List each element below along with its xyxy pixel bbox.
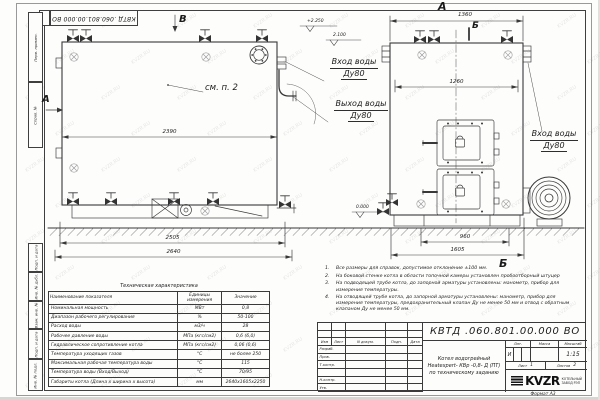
drawing-number: КВТД .060.801.00.000 ВО	[423, 323, 587, 341]
tech-table-cell: 2640х1605х2250	[222, 378, 270, 387]
tech-table-cell: Температура уходящих газов	[49, 350, 178, 359]
frame-column-label: Подп. и дата	[33, 331, 38, 357]
outlet-label-line2: Ду80	[348, 111, 373, 123]
tech-table-cell: 28	[222, 322, 270, 331]
logo-sub-line2: ЗАВОД РЭП	[562, 381, 582, 385]
outlet-label-side: Выход воды Ду80	[326, 99, 396, 122]
tech-table-cell: 115	[222, 359, 270, 368]
stamp-grid-cell-empty	[408, 346, 423, 354]
lit-cell-empty	[514, 348, 522, 361]
tech-table-header: Единицы измерения	[178, 291, 222, 304]
note-number: 2.	[325, 274, 336, 280]
stamp-grid-cell-empty	[346, 377, 386, 385]
stamp-grid-cell-empty	[346, 331, 386, 339]
tech-table: Наименование показателя Единицы измерени…	[48, 291, 270, 388]
tech-table-cell: МВт	[178, 304, 222, 313]
logo-text: KVZR	[525, 374, 560, 388]
frame-column-box: Инв. № дубл.	[28, 272, 43, 301]
stamp-grid-cell: Изм	[318, 338, 332, 346]
tech-table-row: Температура уходящих газов°Сне более 250	[49, 350, 270, 359]
tech-table-cell: МПа (кгс/см2)	[178, 332, 222, 341]
corner-stamp: КВТД .060.801.00.000 ВО	[50, 10, 138, 26]
tech-table-cell: Температура воды (Вход/Выход)	[49, 368, 178, 377]
frame-column-label: Справ. №	[33, 106, 38, 124]
frame-column-label: Инв. № дубл.	[33, 274, 38, 300]
tech-table-title: Техническая характеристика	[48, 283, 270, 289]
tech-table-cell: Максимальная рабочая температура воды	[49, 359, 178, 368]
tech-table-cell: Диапазон рабочего регулирования	[49, 313, 178, 322]
stamp-grid-cell-empty	[346, 346, 386, 354]
stamp-grid-cell-empty	[386, 369, 408, 377]
stamp-grid-cell-empty	[346, 369, 386, 377]
stamp-grid-cell-empty	[408, 377, 423, 385]
frame-column-box: Справ. №	[28, 82, 43, 148]
mass-value	[531, 348, 559, 361]
stamp-grid-cell-empty	[386, 346, 408, 354]
tech-table-cell: Рабочее давление воды	[49, 332, 178, 341]
stamp-grid-cell-empty	[346, 384, 386, 392]
product-line3: по техническому заданию	[429, 370, 499, 377]
outlet-label-line1: Выход воды	[334, 99, 389, 111]
stamp-grid-cell-empty	[386, 361, 408, 369]
inlet-label-line2: Ду80	[341, 69, 366, 81]
stamp-sheet-row: Лист 1 Листов 2	[506, 362, 587, 370]
stamp-grid-cell-empty	[408, 361, 423, 369]
stamp-grid-cell: N докум.	[346, 338, 386, 346]
stamp-grid-cell-empty	[386, 331, 408, 339]
tech-table-cell: МПа (кгс/см2)	[178, 341, 222, 350]
scale-value: 1:15	[559, 348, 587, 361]
sheets-label: Листов	[557, 364, 570, 368]
stamp-grid-cell-empty	[408, 384, 423, 392]
stamp-grid-cell-empty	[408, 354, 423, 362]
stamp-grid-cell: Дата	[408, 338, 423, 346]
dim-2640: 2640	[55, 249, 292, 255]
inlet-label-side: Вход воды Ду80	[322, 57, 386, 80]
tech-table-row: Диапазон рабочего регулирования%50-100	[49, 313, 270, 322]
frame-column-box: Подп. и дата	[28, 243, 43, 272]
lit-value: И	[506, 348, 514, 361]
product-title: Котел водогрейный Heatexpert- КВр -0,8- …	[423, 341, 506, 392]
note-text: Все размеры для справок, допустимое откл…	[336, 266, 487, 272]
tech-table-cell: °С	[178, 350, 222, 359]
tech-table-cell: °С	[178, 359, 222, 368]
stamp-grid-cell: Разраб.	[318, 346, 346, 354]
stamp-lit-header-row: Лит. Масса Масштаб	[506, 341, 587, 348]
stamp-grid-cell-empty	[318, 369, 346, 377]
sheet-value: 1	[530, 363, 533, 368]
tech-table-row: Максимальная рабочая температура воды°С1…	[49, 359, 270, 368]
tech-table-cell: 70/95	[222, 368, 270, 377]
notes-list: 1.Все размеры для справок, допустимое от…	[325, 266, 583, 315]
stamp-right-section: Лит. Масса Масштаб И 1:15 Лист 1	[506, 341, 587, 392]
callout-see-note-2: см. п. 2	[205, 83, 238, 93]
inlet-label-line1: Вход воды	[330, 57, 379, 69]
tech-table-cell: 0,8	[222, 304, 270, 313]
tech-table-header: Значение	[222, 291, 270, 304]
side-view	[46, 15, 316, 261]
tech-table-cell: не более 250	[222, 350, 270, 359]
stamp-grid-cell-empty	[318, 323, 332, 331]
stamp-grid-cell-empty	[386, 384, 408, 392]
stamp-grid-cell-empty	[386, 354, 408, 362]
view-arrow-label-v: В	[179, 14, 187, 25]
stamp-grid-cell-empty	[332, 331, 346, 339]
stamp-grid-cell-empty	[408, 323, 423, 331]
note-item: 2.На боковой стенке котла в области топо…	[325, 274, 583, 280]
frame-column-box: Взам. инв. №	[28, 301, 43, 329]
note-text: На отводящей трубе котла, до запорной ар…	[336, 295, 583, 313]
stamp-grid-cell: Подп.	[386, 338, 408, 346]
stamp-left-grid: ИзмЛистN докум.Подп.ДатаРазраб.Пров.Т.ко…	[318, 323, 423, 392]
frame-column-label: Взам. инв. №	[33, 302, 38, 328]
note-number: 4.	[325, 295, 336, 313]
note-number: 1.	[325, 266, 336, 272]
inlet-front-line2: Ду80	[541, 141, 566, 153]
frame-column-label: Перв. примен.	[33, 33, 38, 62]
elevation-zero: 0.000	[356, 205, 369, 210]
note-item: 4.На отводящей трубе котла, до запорной …	[325, 295, 583, 313]
inlet-front-line1: Вход воды	[530, 129, 579, 141]
stamp-grid-cell: Пров.	[318, 354, 346, 362]
tech-table-cell: Габариты котла (Длина х ширина х высота)	[49, 378, 178, 387]
stamp-grid-cell-empty	[386, 377, 408, 385]
mass-label: Масса	[531, 341, 559, 347]
tech-table-row: Гидравлическое сопротивление котлаМПа (к…	[49, 341, 270, 350]
stamp-grid-cell-empty	[332, 323, 346, 331]
stamp-grid-cell-empty	[408, 369, 423, 377]
tech-table-cell: Гидравлическое сопротивление котла	[49, 341, 178, 350]
dim-1605: 1605	[391, 247, 524, 253]
section-label-top: Б	[472, 21, 479, 31]
lit-cell-empty	[522, 348, 530, 361]
format-label: Формат А3	[500, 392, 586, 397]
stamp-grid-cell: Лист	[332, 338, 346, 346]
logo-mark-icon	[511, 376, 523, 386]
frame-column-box: Перв. примен.	[28, 12, 43, 82]
stamp-grid-cell: Н.контр.	[318, 377, 346, 385]
note-number: 3.	[325, 281, 336, 293]
tech-table-cell: 0,06 (0,6)	[222, 341, 270, 350]
note-item: 1.Все размеры для справок, допустимое от…	[325, 266, 583, 272]
note-item: 3.На подводящей трубе котла, до запорной…	[325, 281, 583, 293]
scale-label: Масштаб	[559, 341, 587, 347]
dim-1360: 1360	[458, 12, 472, 18]
tech-table-row: Расход водым3/ч28	[49, 322, 270, 331]
elevation-mid: 2.100	[333, 33, 346, 38]
product-line2: Heatexpert- КВр -0,8- Д (ПТ)	[428, 363, 501, 370]
stamp-grid-cell-empty	[408, 331, 423, 339]
frame-column-box: Подп. и дата	[28, 329, 43, 359]
lit-label: Лит.	[506, 341, 531, 347]
company-logo: KVZR КОТЕЛЬНЫЙ ЗАВОД РЭП	[506, 370, 587, 392]
tech-table-cell: мм	[178, 378, 222, 387]
tech-table-cell: %	[178, 313, 222, 322]
tech-characteristics: Техническая характеристика Наименование …	[48, 283, 270, 387]
view-arrow-label-a: А	[42, 94, 50, 105]
tech-table-cell: 0,6 (6,0)	[222, 332, 270, 341]
elevation-top: +2.250	[307, 19, 324, 24]
stamp-lit-value-row: И 1:15	[506, 348, 587, 362]
stamp-grid-cell: Утв.	[318, 384, 346, 392]
tech-table-cell: Номинальная мощность	[49, 304, 178, 313]
dim-2390: 2390	[62, 129, 277, 135]
tech-table-cell: м3/ч	[178, 322, 222, 331]
stamp-grid-cell-empty	[346, 323, 386, 331]
frame-column-box: Инв. № подл.	[28, 359, 43, 391]
note-text: На подводящей трубе котла, до запорной а…	[336, 281, 583, 293]
note-text: На боковой стенке котла в области топочн…	[336, 274, 560, 280]
frame-column-label: Подп. и дата	[33, 245, 38, 271]
frame-column-label: Инв. № подл.	[33, 362, 38, 388]
title-block: ИзмЛистN докум.Подп.ДатаРазраб.Пров.Т.ко…	[317, 322, 586, 391]
tech-table-body: Номинальная мощностьМВт0,8Диапазон рабоч…	[49, 304, 270, 387]
tech-table-row: Номинальная мощностьМВт0,8	[49, 304, 270, 313]
tech-table-row: Рабочее давление водыМПа (кгс/см2)0,6 (6…	[49, 332, 270, 341]
logo-subtitle: КОТЕЛЬНЫЙ ЗАВОД РЭП	[562, 377, 582, 385]
sheets-value: 2	[573, 363, 576, 368]
stamp-grid-cell-empty	[346, 361, 386, 369]
tech-table-cell: 50-100	[222, 313, 270, 322]
sheets-cell: Листов 2	[546, 362, 587, 369]
tech-table-row: Температура воды (Вход/Выход)°С70/95	[49, 368, 270, 377]
lit-cells: И	[506, 348, 531, 361]
sheet-cell: Лист 1	[506, 362, 546, 369]
inlet-label-front: Вход воды Ду80	[522, 129, 586, 152]
tech-table-header-row: Наименование показателя Единицы измерени…	[49, 291, 270, 304]
tech-table-row: Габариты котла (Длина х ширина х высота)…	[49, 378, 270, 387]
front-view-label: А	[438, 0, 447, 13]
stamp-grid-cell-empty	[386, 323, 408, 331]
stamp-grid-cell: Т.контр.	[318, 361, 346, 369]
dim-2505: 2505	[60, 235, 285, 241]
drawing-sheet: KVZR.RUKVZR.RUKVZR.RUKVZR.RUKVZR.RUKVZR.…	[0, 0, 600, 400]
product-line1: Котел водогрейный	[438, 356, 491, 363]
tech-table-cell: °С	[178, 368, 222, 377]
tech-table-header: Наименование показателя	[49, 291, 178, 304]
sheet-label: Лист	[518, 364, 527, 368]
stamp-grid-cell-empty	[318, 331, 332, 339]
stamp-grid-cell-empty	[346, 354, 386, 362]
dim-1260: 1260	[395, 79, 518, 85]
tech-table-cell: Расход воды	[49, 322, 178, 331]
corner-stamp-number: КВТД .060.801.00.000 ВО	[52, 15, 136, 22]
dim-960: 960	[421, 234, 509, 240]
